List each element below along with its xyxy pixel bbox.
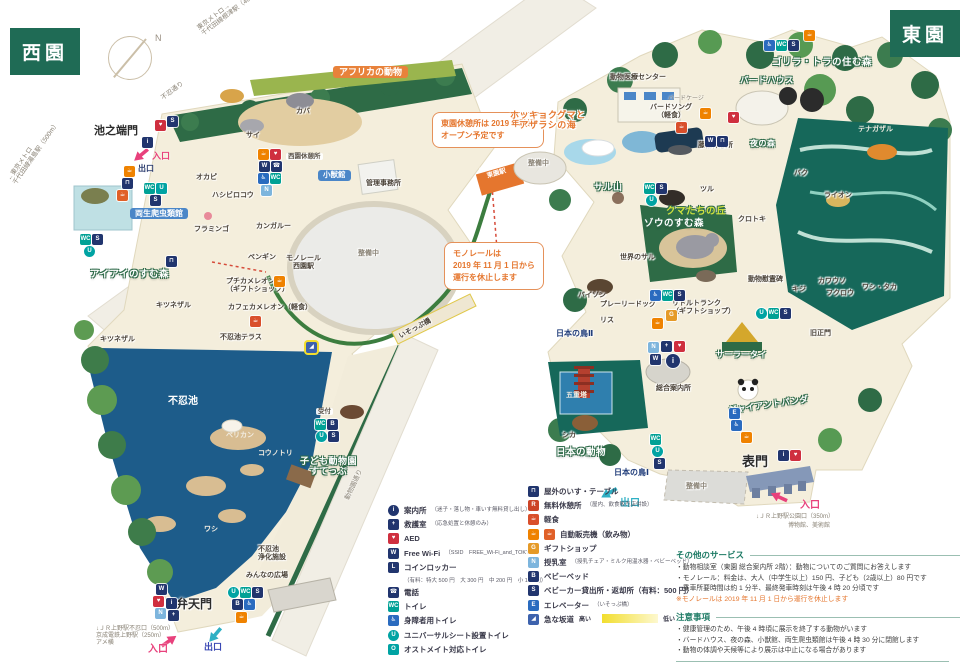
legend-item-slope: ◢急な坂道高い低い <box>528 614 694 625</box>
services-line: ・動物相談室（東園 総合案内所 2階）：動物についてのご質問にお答えします <box>676 563 960 574</box>
babybed-icon: B <box>327 419 338 430</box>
phone-icon: ☎ <box>388 587 399 598</box>
phone-icon: ☎ <box>271 161 282 172</box>
animal-deer: シカ <box>562 432 576 440</box>
stroller-icon: S <box>656 183 667 194</box>
toilet-icon: WC <box>270 173 281 184</box>
zoo-map: 西園 東園 N 不忍通り 東京メトロ→ 千代田線根津駅（400m） ←東京メトロ… <box>0 0 960 672</box>
universal-toilet-icon: U <box>646 195 657 206</box>
toilet-icon: WC <box>80 234 91 245</box>
animal-penguin: ペンギン <box>248 254 276 262</box>
aed-icon: ♥ <box>728 112 739 123</box>
animal-pheasant: キジ <box>792 286 806 294</box>
aed-icon: ♥ <box>790 450 801 461</box>
animal-lion: ライオン <box>824 192 852 200</box>
gate-omote: 表門 <box>742 455 768 470</box>
nursing-room-icon: N <box>648 342 659 353</box>
legend-item: Sベビーカー貸出所・返却所（有料：500 円） <box>528 585 694 596</box>
meal-icon: ☕ <box>676 122 687 133</box>
slope-gradient <box>602 614 658 623</box>
benten-exit: 出口 <box>204 642 222 652</box>
info-icon: i <box>666 354 680 368</box>
omote-entrance: 入口 <box>800 500 820 512</box>
services-box: その他のサービス ・動物相談室（東園 総合案内所 2階）：動物についてのご質問に… <box>676 549 960 668</box>
facility-memorial: 動物慰霊碑 <box>748 276 783 284</box>
info-icon: i <box>388 505 399 516</box>
legend-right: ⊓屋外のいす・テーブル R無料休憩所（屋内、飲食販売店併設） ☕軽食 ☕☕自動販… <box>528 486 694 625</box>
stroller-icon: S <box>674 290 685 301</box>
legend-item: Gギフトショップ <box>528 543 694 554</box>
facility-purification: 不忍池 浄化施設 <box>258 546 286 562</box>
elevator-icon: E <box>528 600 539 611</box>
cautions-line: ・バードハウス、夜の森、小獣館、両生爬虫類館は午後 4 時 30 分に閉館します <box>676 636 960 647</box>
ikenohata-exit: 出口 <box>138 164 154 173</box>
toilet-icon: WC <box>776 40 787 51</box>
meal-icon: ☕ <box>250 316 261 327</box>
ostomate-toilet-icon: O <box>388 644 399 655</box>
legend-item: Bベビーベッド <box>528 571 694 582</box>
vending-icon: ☕ <box>274 276 285 287</box>
gate-benten: 弁天門 <box>176 598 212 612</box>
east-garden-badge: 東園 <box>890 10 960 57</box>
area-ayeaye: アイアイのすむ森 <box>90 270 169 281</box>
animal-squirrel: リス <box>600 317 614 325</box>
animal-world-monkey: 世界のサル <box>620 254 655 262</box>
vending-icon: ☕ <box>124 166 135 177</box>
accessible-toilet-icon: ♿ <box>258 173 269 184</box>
vending-icon: ☕ <box>528 529 539 540</box>
compass-north-label: N <box>155 33 162 43</box>
animal-tapir: バク <box>794 170 808 178</box>
wifi-icon: W <box>650 354 661 365</box>
universal-toilet-icon: U <box>228 587 239 598</box>
animal-shoebill: ハシビロコウ <box>212 192 254 200</box>
ikenohata-entrance: 入口 <box>152 151 170 161</box>
stroller-icon: S <box>92 234 103 245</box>
legend-item: R無料休憩所（屋内、飲食販売店併設） <box>528 500 694 511</box>
animal-okapi: オカピ <box>196 174 217 182</box>
area-africa: アフリカの動物 <box>333 66 408 78</box>
reception-label: 受付 <box>316 408 333 415</box>
legend-item: ⊓屋外のいす・テーブル <box>528 486 694 497</box>
facility-reptile-house: 両生爬虫類館 <box>130 208 188 219</box>
universal-toilet-icon: U <box>156 183 167 194</box>
facility-west-rest: 西園休憩所 <box>286 153 323 160</box>
vending-icon: ☕ <box>700 108 711 119</box>
compass-icon: N <box>108 36 152 80</box>
area-sala-thai: サーラータイ <box>716 350 767 359</box>
services-title: その他のサービス <box>676 549 960 561</box>
animal-pelican: ペリカン <box>226 432 254 440</box>
animal-prairie-dog: プレーリードッグ <box>600 301 656 309</box>
wifi-icon: W <box>388 548 399 559</box>
legend-item: Uユニバーサルシート設置トイレ <box>388 630 620 641</box>
toilet-icon: WC <box>662 290 673 301</box>
cautions-title: 注意事項 <box>676 611 960 623</box>
info-icon: i <box>142 137 153 148</box>
toilet-icon: WC <box>388 601 399 612</box>
omote-access-note2: 博物館、美術館 <box>788 523 830 530</box>
maintenance-label: 整備中 <box>528 160 549 168</box>
bench-icon: ⊓ <box>166 256 177 267</box>
animal-crane: ツル <box>700 186 714 194</box>
bench-icon: ⊓ <box>122 178 133 189</box>
firstaid-icon: + <box>388 519 399 530</box>
slope-high-label: 高い <box>579 614 591 623</box>
gift-shop-icon: G <box>666 310 677 321</box>
maintenance-label: 整備中 <box>358 250 379 258</box>
toilet-icon: WC <box>144 183 155 194</box>
vending-icon: ☕ <box>804 30 815 41</box>
services-line: ・モノレール：料金は、大人（中学生以上）150 円、子ども（2歳以上）80 円で… <box>676 574 960 585</box>
info-icon: i <box>778 450 789 461</box>
animal-stork: コウノトリ <box>258 450 293 458</box>
universal-toilet-icon: U <box>388 630 399 641</box>
toilet-icon: WC <box>240 587 251 598</box>
bench-icon: ⊓ <box>528 486 539 497</box>
wifi-icon: W <box>259 161 270 172</box>
animal-rhino: サイ <box>246 132 260 140</box>
animal-lemur: キツネザル <box>156 302 191 310</box>
nursing-room-icon: N <box>155 608 166 619</box>
area-japan-birds1: 日本の鳥Ⅰ <box>614 468 649 477</box>
area-japan-animals: 日本の動物 <box>556 448 606 459</box>
babybed-icon: B <box>232 599 243 610</box>
animal-flamingo: フラミンゴ <box>194 226 229 234</box>
animal-kangaroo: カンガルー <box>256 223 291 231</box>
elevator-icon: E <box>729 408 740 419</box>
meal-icon: ☕ <box>528 514 539 525</box>
animal-kurotoki: クロトキ <box>738 216 766 224</box>
accessible-toilet-icon: ♿ <box>731 420 742 431</box>
wifi-icon: W <box>156 584 167 595</box>
universal-toilet-icon: U <box>316 431 327 442</box>
babybed-icon: B <box>528 571 539 582</box>
animal-otter: カワウソ <box>818 278 846 286</box>
aed-icon: ♥ <box>674 341 685 352</box>
legend-item: ☕☕自動販売機（飲み物） <box>528 529 694 540</box>
accessible-toilet-icon: ♿ <box>244 599 255 610</box>
accessible-toilet-icon: ♿ <box>764 40 775 51</box>
accessible-toilet-icon: ♿ <box>388 615 399 626</box>
universal-toilet-icon: U <box>756 308 767 319</box>
vending-icon: ☕ <box>741 432 752 443</box>
west-garden-badge: 西園 <box>10 28 80 75</box>
area-polar: ホッキョクグマと アザラシの海 <box>510 110 586 131</box>
stroller-icon: S <box>528 585 539 596</box>
facility-bird-song: バードソング （軽食） <box>650 104 692 120</box>
legend-item: Eエレベーター（いそっぷ橋） <box>528 600 694 611</box>
vending-icon: ☕ <box>117 190 128 201</box>
animal-bison: バイソン <box>578 292 606 300</box>
monorail-stop-callout: モノレールは 2019 年 11 月 1 日から 運行を休止します <box>444 242 544 290</box>
universal-toilet-icon: U <box>84 246 95 257</box>
aed-icon: ♥ <box>153 596 164 607</box>
legend-item: Oオストメイト対応トイレ <box>388 644 620 655</box>
animal-tenagazaru: テナガザル <box>858 126 893 134</box>
animal-hippo: カバ <box>296 108 310 116</box>
stroller-icon: S <box>780 308 791 319</box>
toilet-icon: WC <box>315 419 326 430</box>
facility-cafe-chameleon: カフェカメレオン（軽食） <box>228 304 312 312</box>
wifi-icon: W <box>705 136 716 147</box>
nursing-room-icon: N <box>528 557 539 568</box>
legend-item: ☕軽食 <box>528 514 694 525</box>
vending-icon: ☕ <box>652 318 663 329</box>
facility-small-mammal: 小獣館 <box>318 170 351 181</box>
toilet-icon: WC <box>644 183 655 194</box>
gate-ikenohata: 池之端門 <box>94 125 138 138</box>
stroller-icon: S <box>654 458 665 469</box>
area-monkey-mountain: サル山 <box>594 182 623 192</box>
animal-owl: フクロウ <box>826 290 854 298</box>
benten-access-note: ↓ＪＲ上野駅不忍口（500m） 京成電鉄上野駅（250m） アメ横 <box>96 626 174 647</box>
facility-minna-plaza: みんなの広場 <box>246 572 288 580</box>
animal-eagle: ワシ <box>204 526 218 534</box>
aed-icon: ♥ <box>155 120 166 131</box>
slope-icon: ◢ <box>528 614 539 625</box>
omote-access-note1: ↓ＪＲ上野駅公園口（350m） <box>756 514 834 521</box>
cautions-line: ・動物の体調や天候等により展示は中止になる場合があります <box>676 646 960 657</box>
legend-item: N授乳室（授乳チェア・ミルク用温水器・ベビーベッド） <box>528 557 694 568</box>
slope-low-label: 低い <box>663 614 675 623</box>
services-monorail-note: ※モノレールは 2019 年 11 月 1 日から運行を休止します <box>676 595 960 606</box>
bench-icon: ⊓ <box>717 136 728 147</box>
monorail-west-station: モノレール 西園駅 <box>286 255 321 271</box>
stroller-icon: S <box>328 431 339 442</box>
facility-medical-center: 動物医療センター <box>610 74 666 82</box>
animal-hawks: ワシ・タカ <box>862 284 897 292</box>
locker-icon: L <box>388 562 399 573</box>
area-elephant-forest: ゾウのすむ森 <box>644 219 704 230</box>
facility-pagoda: 五重塔 <box>566 392 587 400</box>
stroller-icon: S <box>150 195 161 206</box>
facility-guide-center: 総合案内所 <box>656 385 691 393</box>
aed-icon: ♥ <box>270 149 281 160</box>
toilet-icon: WC <box>768 308 779 319</box>
area-night-forest: 夜の森 <box>750 139 776 148</box>
nursing-room-icon: N <box>261 185 272 196</box>
stroller-icon: S <box>167 116 178 127</box>
vending-icon: ☕ <box>544 529 555 540</box>
vending-icon: ☕ <box>258 149 269 160</box>
facility-little-trunk: リトルトランク （ギフトショップ） <box>672 300 735 316</box>
area-birdhouse: バードハウス <box>740 76 794 86</box>
info-icon: i <box>166 598 177 609</box>
slope-icon: ◢ <box>306 342 317 353</box>
area-japan-birds2: 日本の鳥Ⅱ <box>556 329 593 338</box>
facility-admin: 管理事務所 <box>366 180 401 188</box>
accessible-toilet-icon: ♿ <box>650 290 661 301</box>
universal-toilet-icon: U <box>652 446 663 457</box>
area-gorilla-tiger: ゴリラ・トラの住む森 <box>772 58 872 69</box>
toilet-icon: WC <box>650 434 661 445</box>
panda-illustration <box>738 379 758 400</box>
cautions-line: ・健康管理のため、午後 4 時頃に展示を終了する動物がいます <box>676 625 960 636</box>
facility-bird-cage: バードケージ <box>668 96 704 103</box>
resthouse-icon: R <box>528 500 539 511</box>
vending-icon: ☕ <box>236 612 247 623</box>
stroller-icon: S <box>788 40 799 51</box>
area-bear-hill: クマたちの丘 <box>666 207 726 218</box>
firstaid-icon: + <box>661 341 672 352</box>
services-line: 乗車所要時間は約 1 分半、最終発車時刻は午後 4 時 20 分頃です <box>676 584 960 595</box>
firstaid-icon: + <box>168 610 179 621</box>
area-kids-zoo: 子ども動物園 すてっぷ <box>300 456 357 477</box>
animal-lemur: キツネザル <box>100 336 135 344</box>
facility-terrace: 不忍池テラス <box>220 334 262 342</box>
pond-label: 不忍池 <box>168 396 198 408</box>
stroller-icon: S <box>252 587 263 598</box>
gift-shop-icon: G <box>528 543 539 554</box>
aed-icon: ♥ <box>388 533 399 544</box>
gate-kyuseimon: 旧正門 <box>810 330 831 338</box>
